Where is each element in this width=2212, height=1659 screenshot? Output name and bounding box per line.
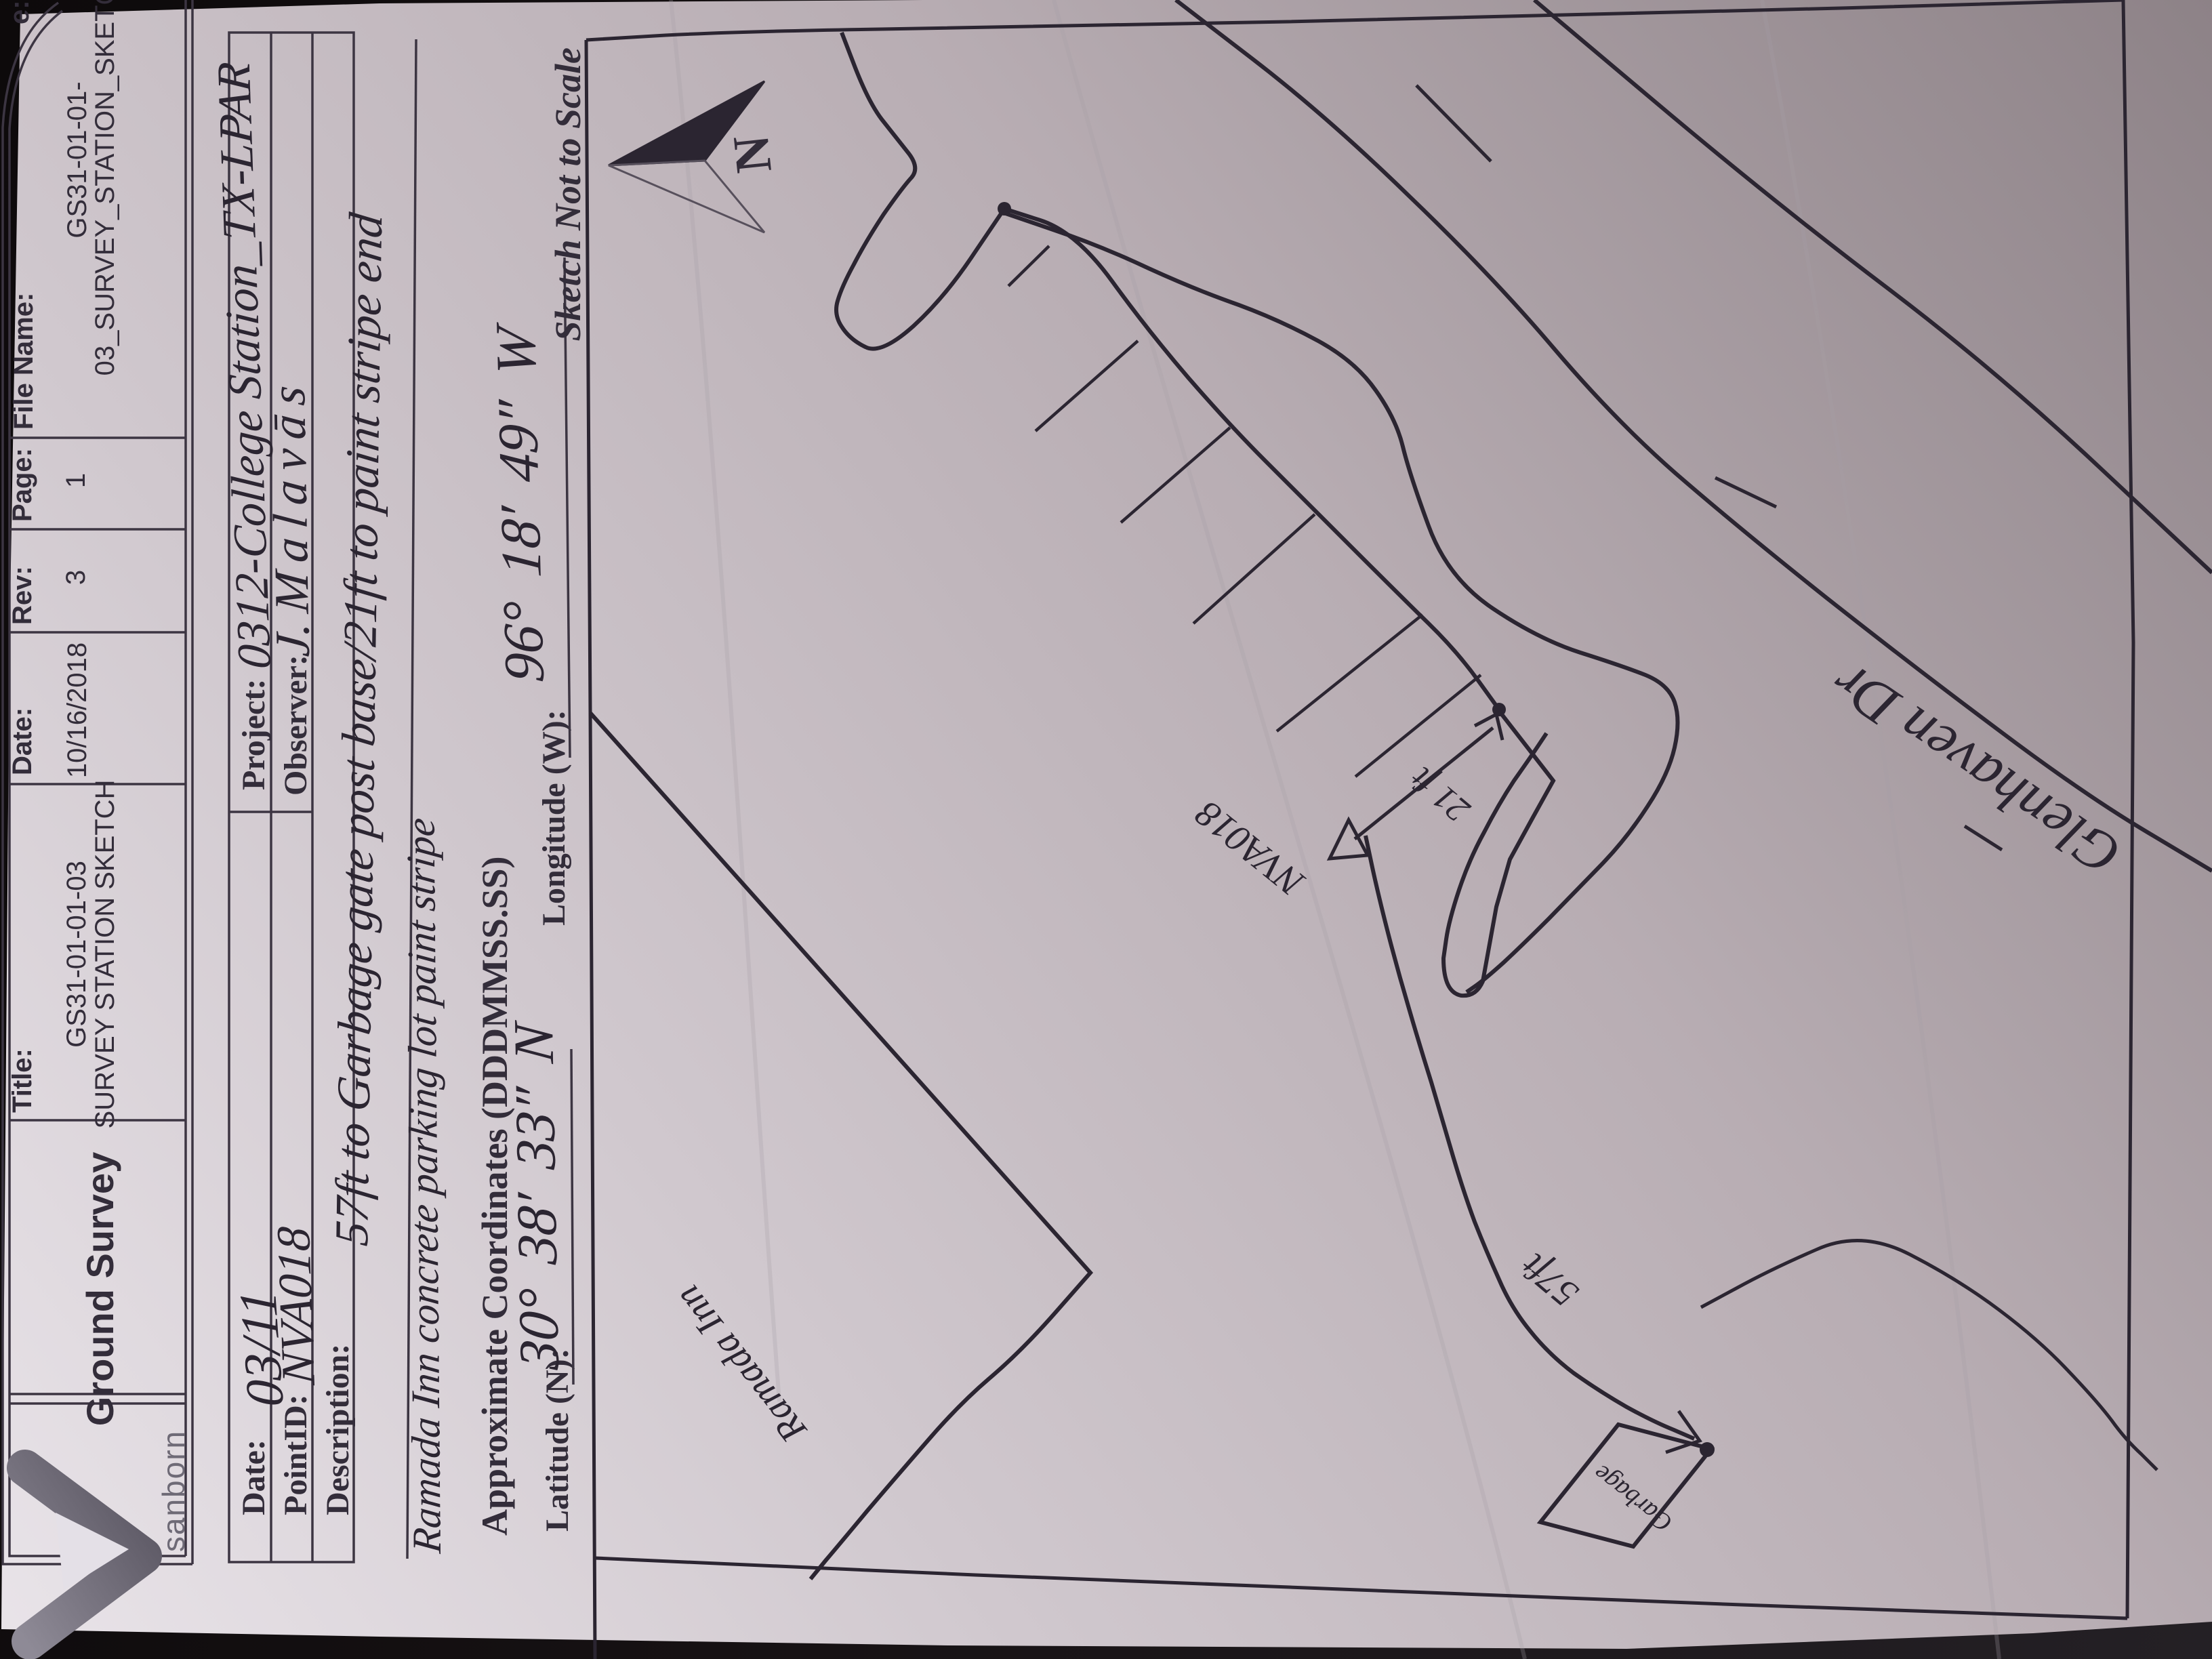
- svg-text:1: 1: [61, 473, 91, 488]
- svg-text:N: N: [722, 133, 783, 176]
- svg-text:Sketch Not to Scale: Sketch Not to Scale: [548, 47, 588, 341]
- svg-text:Date:: Date:: [7, 708, 37, 775]
- svg-text:30° 38′ 33″ N: 30° 38′ 33″ N: [502, 1018, 571, 1372]
- svg-text:GS31-01-01-03: GS31-01-01-03: [62, 861, 91, 1048]
- svg-text:Latitude (N):: Latitude (N):: [539, 1348, 575, 1532]
- svg-text:Date:: Date:: [236, 1439, 272, 1515]
- svg-text:3: 3: [61, 570, 91, 585]
- svg-text:Rev:: Rev:: [7, 566, 37, 625]
- svg-text:GS31-01-01-: GS31-01-01-: [62, 81, 92, 238]
- svg-text:Ramada Inn concrete parking lo: Ramada Inn concrete parking lot paint st…: [398, 816, 450, 1556]
- svg-text:NVA018: NVA018: [267, 1225, 325, 1387]
- svg-text:Project:: Project:: [236, 679, 272, 790]
- svg-text:sanborn: sanborn: [156, 1430, 191, 1552]
- svg-text:10/16/2018: 10/16/2018: [62, 642, 92, 778]
- svg-text:Observer:: Observer:: [278, 655, 314, 796]
- svg-text:PointID:: PointID:: [278, 1394, 314, 1515]
- svg-text:03_SURVEY_STATION_SKETCH: 03_SURVEY_STATION_SKETCH: [90, 0, 120, 375]
- svg-text:Title:: Title:: [7, 1048, 37, 1113]
- svg-text:J. M a l a v ā s: J. M a l a v ā s: [261, 384, 320, 659]
- svg-text:e:: e:: [5, 0, 35, 24]
- svg-text:Ground Survey: Ground Survey: [79, 1152, 121, 1427]
- svg-text:Description:: Description:: [320, 1344, 356, 1515]
- svg-text:Longitude (W):: Longitude (W):: [536, 710, 572, 926]
- svg-text:SURVEY STATION SKETCH: SURVEY STATION SKETCH: [90, 780, 120, 1129]
- svg-text:File Name:: File Name:: [9, 293, 39, 430]
- svg-text:Page:: Page:: [7, 448, 37, 522]
- svg-text:96° 18′ 49″ W: 96° 18′ 49″ W: [484, 321, 556, 684]
